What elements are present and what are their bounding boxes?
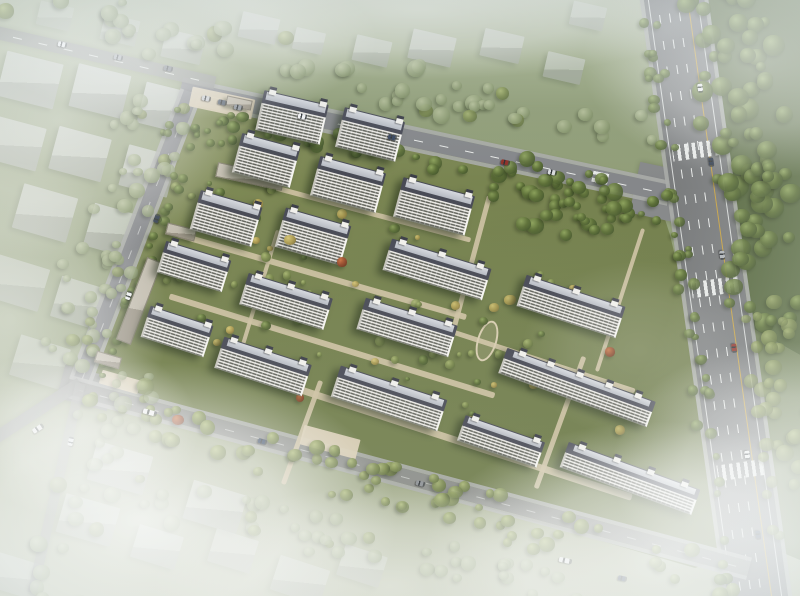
tree — [416, 97, 432, 111]
tree — [312, 454, 323, 465]
tree — [127, 423, 140, 434]
tree — [688, 385, 698, 396]
tree — [291, 523, 301, 532]
tree — [435, 565, 448, 577]
tree — [170, 172, 178, 180]
tree — [648, 103, 660, 113]
tree — [66, 334, 81, 346]
tree — [101, 5, 117, 21]
tree — [436, 94, 447, 106]
tree — [562, 511, 576, 523]
tree — [157, 489, 169, 500]
tree — [30, 536, 47, 552]
tree — [118, 0, 127, 6]
tree — [429, 474, 439, 482]
tree — [140, 500, 150, 509]
tree — [684, 329, 695, 338]
tree — [453, 574, 462, 582]
tree — [671, 232, 679, 238]
tree — [615, 425, 625, 434]
tree — [137, 378, 154, 395]
tree — [724, 298, 736, 308]
tree — [200, 420, 215, 435]
tree — [142, 48, 156, 60]
tree — [176, 122, 189, 134]
car — [731, 343, 737, 353]
tree — [135, 475, 144, 484]
tree — [538, 174, 553, 187]
tree — [420, 563, 435, 576]
context-building — [0, 115, 47, 172]
tree — [516, 217, 532, 231]
tree — [332, 546, 345, 558]
tree — [89, 522, 104, 537]
tree — [780, 184, 800, 203]
tree — [128, 154, 141, 165]
tree — [758, 452, 769, 462]
tree — [407, 60, 425, 77]
tree — [519, 151, 536, 167]
tree — [702, 374, 710, 382]
tree — [105, 29, 120, 44]
tree — [325, 457, 337, 468]
tree — [468, 350, 475, 357]
tree — [164, 129, 172, 137]
car — [558, 556, 572, 563]
tree — [228, 135, 237, 144]
tree — [712, 588, 727, 596]
tree — [364, 484, 374, 493]
tree — [41, 337, 50, 346]
tree — [783, 232, 795, 243]
tree — [741, 315, 751, 323]
tree — [57, 259, 69, 269]
tree — [261, 321, 271, 330]
car — [755, 530, 761, 540]
context-building — [238, 11, 281, 45]
tree — [751, 405, 766, 418]
car — [617, 575, 627, 581]
tree — [776, 106, 793, 123]
tree — [214, 21, 231, 36]
tree — [697, 355, 707, 364]
tree — [463, 110, 477, 123]
tree — [483, 83, 494, 94]
tree — [553, 530, 564, 539]
tree — [763, 35, 784, 56]
tree — [726, 583, 740, 596]
tree — [496, 87, 509, 100]
tree — [335, 63, 351, 77]
tree — [521, 559, 533, 571]
tree — [112, 379, 121, 388]
tree — [248, 525, 261, 536]
tree — [664, 119, 671, 126]
tree — [255, 495, 269, 510]
tree — [133, 168, 143, 176]
tree — [391, 356, 399, 364]
tree — [329, 445, 340, 455]
tree — [540, 210, 553, 221]
tree — [116, 284, 126, 292]
tree — [753, 312, 762, 320]
tree — [445, 360, 455, 369]
tree — [191, 39, 203, 49]
tree — [484, 100, 495, 110]
tree — [585, 170, 593, 178]
tree — [101, 424, 117, 438]
context-building — [0, 51, 64, 110]
tree — [328, 491, 336, 498]
tree — [527, 543, 541, 554]
tree — [164, 515, 180, 531]
tree — [523, 339, 533, 348]
roof-bulkhead — [204, 318, 213, 328]
tree — [242, 496, 251, 504]
tree — [493, 488, 508, 501]
tree — [231, 281, 238, 288]
context-building — [569, 0, 608, 31]
tree — [119, 168, 127, 175]
tree — [489, 183, 499, 191]
tree — [767, 525, 779, 535]
tree — [341, 532, 357, 546]
tree — [80, 484, 89, 492]
tree — [714, 574, 727, 586]
tree — [242, 445, 254, 456]
tree — [172, 415, 183, 426]
tree — [443, 512, 456, 524]
tree — [320, 535, 332, 545]
tree — [108, 184, 117, 192]
tree — [33, 565, 50, 581]
tree — [149, 430, 162, 442]
tree — [0, 3, 14, 19]
tree — [197, 485, 213, 498]
tree — [671, 144, 679, 151]
tree — [363, 532, 375, 544]
tree — [495, 350, 504, 358]
tree — [347, 458, 357, 468]
tree — [762, 171, 774, 182]
tree — [564, 197, 575, 207]
tree — [452, 81, 462, 90]
tree — [774, 379, 788, 392]
tree — [129, 183, 145, 198]
roof-bulkhead — [396, 115, 405, 124]
tree — [577, 213, 586, 222]
context-building — [543, 51, 586, 85]
tree — [124, 266, 139, 279]
tree — [156, 28, 171, 42]
tree — [366, 463, 380, 475]
tree — [226, 326, 235, 333]
tree — [574, 519, 589, 534]
tree — [757, 74, 773, 90]
tree — [149, 232, 157, 240]
context-building — [270, 555, 331, 596]
tree — [744, 301, 756, 312]
tree — [508, 113, 521, 124]
context-building — [68, 63, 131, 119]
tree — [419, 355, 429, 364]
tree — [422, 548, 432, 556]
tree — [788, 429, 800, 444]
tree — [718, 560, 729, 569]
tree — [560, 229, 572, 241]
tree — [705, 388, 714, 396]
tree — [759, 438, 774, 452]
tree — [488, 190, 500, 201]
tree — [655, 140, 667, 150]
tree — [75, 359, 90, 372]
tree — [474, 517, 486, 529]
tree — [714, 477, 725, 487]
tree — [764, 378, 774, 388]
tree — [352, 281, 359, 287]
tree — [639, 18, 649, 28]
tree — [503, 538, 512, 547]
tree — [720, 128, 731, 138]
tree — [693, 116, 709, 131]
tree — [261, 252, 271, 262]
tree — [790, 295, 800, 309]
tree — [340, 489, 353, 501]
tree — [427, 164, 439, 175]
tree — [165, 121, 174, 129]
tree — [299, 530, 312, 541]
car — [708, 157, 714, 167]
car — [32, 423, 45, 433]
tree — [474, 379, 481, 385]
tree — [267, 246, 272, 250]
context-building — [292, 27, 326, 55]
tree — [578, 108, 593, 121]
tree — [498, 562, 508, 570]
tree — [448, 486, 463, 498]
tree — [751, 181, 770, 198]
tree — [207, 181, 212, 186]
tree — [766, 295, 782, 310]
tree — [621, 214, 632, 224]
context-building — [182, 480, 247, 535]
tree — [164, 408, 173, 416]
tree — [178, 174, 188, 183]
tree — [673, 284, 684, 294]
tree — [684, 543, 699, 557]
tree — [756, 62, 766, 71]
tree — [36, 592, 50, 596]
tree — [501, 515, 516, 527]
tree — [461, 556, 476, 571]
tree — [227, 121, 240, 132]
tree — [557, 120, 572, 133]
tree — [457, 352, 462, 357]
context-building — [130, 524, 184, 570]
tree — [652, 545, 661, 554]
tree — [653, 21, 661, 29]
tree — [301, 280, 306, 285]
tree — [783, 328, 795, 340]
tree — [589, 225, 600, 235]
tree — [742, 30, 759, 45]
tree — [398, 502, 407, 509]
context-building — [48, 126, 112, 182]
tree — [284, 235, 296, 245]
context-building — [479, 28, 524, 64]
tree — [97, 413, 107, 421]
tree — [594, 524, 603, 532]
tree — [635, 110, 648, 121]
tree — [330, 513, 343, 525]
tree — [217, 42, 234, 58]
tree — [776, 445, 793, 461]
tree — [766, 315, 777, 326]
tree — [227, 112, 235, 119]
tree — [216, 120, 223, 126]
tree — [58, 543, 69, 554]
tree — [757, 141, 776, 158]
tree — [499, 571, 509, 580]
tree — [720, 536, 730, 544]
tree — [539, 537, 554, 552]
tree — [144, 168, 159, 183]
tree — [486, 489, 495, 498]
tree — [750, 127, 763, 140]
tree — [204, 128, 211, 134]
tree — [69, 496, 83, 508]
tree — [110, 120, 119, 129]
aerial-residential-rendering — [0, 0, 800, 596]
tree — [601, 223, 614, 234]
tree — [174, 185, 184, 193]
tree — [310, 510, 323, 523]
tree — [174, 107, 181, 113]
tree — [280, 505, 289, 513]
tree — [290, 64, 306, 79]
tree — [304, 547, 315, 556]
tree — [68, 512, 84, 527]
tree — [132, 107, 142, 116]
tree — [552, 572, 565, 583]
tree — [653, 74, 664, 83]
tree — [76, 242, 90, 255]
tree — [50, 477, 67, 493]
tree — [731, 106, 748, 123]
car — [697, 83, 703, 93]
tree — [415, 235, 421, 240]
context-building — [12, 183, 79, 243]
tree — [245, 511, 257, 523]
context-building — [0, 254, 50, 312]
tree — [529, 189, 544, 201]
tree — [675, 269, 687, 280]
tree — [114, 396, 131, 412]
tree — [73, 410, 84, 420]
tree — [381, 497, 390, 506]
tree — [434, 493, 449, 507]
car — [744, 450, 750, 460]
tree — [309, 440, 325, 455]
tree — [670, 574, 681, 584]
tree — [87, 307, 98, 316]
tree — [504, 295, 515, 305]
tree — [606, 201, 622, 216]
tree — [395, 83, 410, 98]
tree — [647, 196, 658, 206]
tree — [690, 314, 700, 322]
tree — [85, 291, 97, 303]
tree — [541, 567, 550, 576]
tree — [210, 445, 226, 460]
roof-bulkhead — [291, 141, 300, 151]
tree — [705, 428, 717, 439]
tree — [691, 420, 703, 431]
roof-bulkhead — [253, 200, 262, 210]
tree — [479, 317, 488, 325]
tree — [117, 199, 133, 214]
tree — [133, 94, 149, 107]
context-building — [352, 34, 393, 67]
tree — [102, 453, 114, 464]
tree — [371, 476, 381, 484]
tree — [594, 120, 609, 133]
tree — [751, 341, 763, 352]
tree — [453, 101, 465, 111]
tree — [368, 550, 382, 563]
tree — [63, 275, 71, 282]
tree — [357, 83, 367, 93]
tree — [165, 434, 181, 447]
tree — [528, 589, 538, 596]
tree — [169, 152, 179, 161]
tree — [112, 241, 120, 248]
tree — [652, 216, 661, 225]
tree — [206, 139, 215, 147]
tree — [645, 75, 652, 82]
tree — [489, 303, 499, 312]
tree — [253, 467, 263, 477]
tree — [450, 541, 461, 552]
tree — [475, 504, 483, 511]
tree — [194, 132, 201, 138]
tree — [599, 185, 610, 196]
car — [719, 250, 725, 260]
tree — [433, 107, 450, 124]
tree — [104, 487, 121, 502]
tree — [283, 271, 292, 280]
tree — [49, 345, 57, 352]
tree — [288, 449, 303, 461]
tree — [142, 205, 154, 217]
